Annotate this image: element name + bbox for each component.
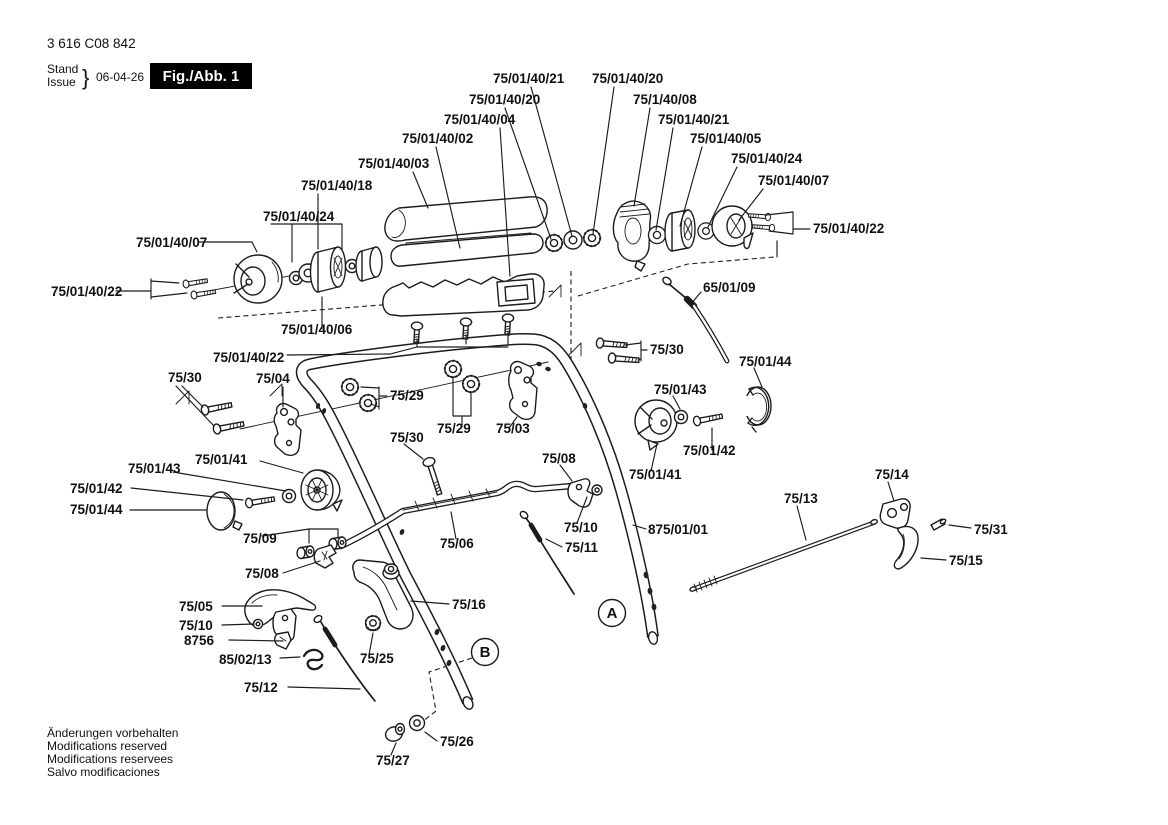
part-label-75-03: 75/03 (496, 421, 530, 436)
figure-label: Fig./Abb. 1 (163, 68, 240, 85)
bolt (608, 353, 639, 365)
flange-nut (463, 376, 479, 392)
washer (648, 226, 665, 243)
part-label-75-31: 75/31 (974, 522, 1008, 537)
part-label-75-01-44-b: 75/01/44 (739, 354, 792, 369)
clamp-piece (635, 400, 677, 450)
bearing-drum-left (311, 247, 346, 292)
grip-shell-bottom (383, 274, 544, 316)
ring-75-10 (253, 619, 262, 628)
bracket-75-04 (274, 404, 301, 456)
grip-screw (182, 276, 207, 288)
serrated-nut (584, 230, 600, 246)
footer-line-es: Salvo modificaciones (47, 765, 160, 779)
callout-a-letter: A (607, 605, 618, 622)
part-label-75-01-40-04: 75/01/40/04 (444, 112, 516, 127)
part-label-75-01-40-21-a: 75/01/40/21 (493, 71, 565, 86)
serrated-nut (546, 235, 562, 251)
part-label-75-30-b: 75/30 (650, 342, 684, 357)
part-label-75-1-40-08: 75/1/40/08 (633, 92, 697, 107)
bracket-75-03 (509, 362, 537, 420)
bolt (245, 494, 275, 508)
part-label-75-01-40-07-b: 75/01/40/07 (758, 173, 829, 188)
part-label-75-11: 75/11 (565, 540, 599, 555)
part-label-75-08-a: 75/08 (245, 566, 279, 581)
washer (564, 231, 582, 249)
footer-line-de: Änderungen vorbehalten (47, 726, 178, 740)
issue-word: Issue (47, 75, 76, 89)
part-label-75-01-41-a: 75/01/41 (195, 452, 248, 467)
washer-75-26 (410, 716, 425, 731)
part-label-75-01-40-03: 75/01/40/03 (358, 156, 430, 171)
part-label-75-10-a: 75/10 (179, 618, 213, 633)
clip-ring (741, 387, 771, 432)
part-label-75-01-40-22-c: 75/01/40/22 (813, 221, 884, 236)
bolt (200, 399, 232, 415)
parts-diagram: A B 75/01/40/21 75/01/40/20 75/01/40/20 … (0, 0, 1168, 825)
nut-75-25 (366, 616, 381, 631)
part-label-8756: 8756 (184, 633, 215, 648)
clamp-lever (613, 201, 650, 271)
washer (283, 490, 296, 503)
part-label-75-01-40-22-a: 75/01/40/22 (51, 284, 122, 299)
callout-b: B (472, 639, 499, 666)
part-label-75-26: 75/26 (440, 734, 474, 749)
part-label-75-04: 75/04 (256, 371, 290, 386)
bolt (693, 411, 723, 426)
part-label-75-05: 75/05 (179, 599, 213, 614)
part-label-75-01-40-22-b: 75/01/40/22 (213, 350, 284, 365)
lower-left-parts (245, 560, 425, 743)
bracket-75-14 (880, 499, 910, 528)
part-label-75-08-b: 75/08 (542, 451, 576, 466)
part-label-75-15: 75/15 (949, 553, 983, 568)
clamp-half-left (234, 255, 282, 303)
stand-word: Stand (47, 62, 78, 76)
part-label-75-01-40-07-a: 75/01/40/07 (136, 235, 207, 250)
cap-75-27 (384, 724, 405, 743)
part-label-75-10-b: 75/10 (564, 520, 598, 535)
washer (675, 411, 688, 424)
part-label-75-01-41-b: 75/01/41 (629, 467, 682, 482)
callout-a: A (599, 600, 626, 627)
part-label-75-01-40-24-a: 75/01/40/24 (263, 209, 335, 224)
part-label-75-01-40-06: 75/01/40/06 (281, 322, 353, 337)
part-label-75-09: 75/09 (243, 531, 277, 546)
issue-date: 06-04-26 (96, 70, 144, 84)
clamp-half-right (712, 206, 753, 248)
title-block: 3 616 C08 842 Stand Issue } 06-04-26 Fig… (47, 36, 252, 90)
grip-screw (752, 223, 774, 232)
adjuster-knob (301, 470, 342, 511)
part-label-75-06: 75/06 (440, 536, 474, 551)
brace-glyph: } (82, 65, 89, 90)
part-label-75-14: 75/14 (875, 467, 909, 482)
part-label-75-01-42-a: 75/01/42 (70, 481, 123, 496)
bolt (212, 418, 244, 434)
part-label-75-16: 75/16 (452, 597, 486, 612)
flange-nut (360, 395, 376, 411)
part-label-75-01-43-b: 75/01/43 (654, 382, 707, 397)
trigger-assembly (880, 499, 946, 569)
part-label-75-30-a: 75/30 (168, 370, 202, 385)
part-label-75-01-40-20-a: 75/01/40/20 (592, 71, 663, 86)
part-label-75-01-40-24-b: 75/01/40/24 (731, 151, 803, 166)
part-label-75-01-40-18: 75/01/40/18 (301, 178, 373, 193)
bearing-drum-right (665, 210, 695, 251)
part-label-75-01-40-20-b: 75/01/40/20 (469, 92, 540, 107)
part-label-75-01-40-05: 75/01/40/05 (690, 131, 762, 146)
rod-spacer (297, 546, 314, 559)
part-label-75-29-b: 75/29 (437, 421, 471, 436)
part-label-75-01-40-21-b: 75/01/40/21 (658, 112, 730, 127)
flange-nut (445, 361, 461, 377)
flange-nut (342, 379, 358, 395)
part-label-75-01-43-a: 75/01/43 (128, 461, 181, 476)
mount-brackets (200, 361, 537, 496)
footer-line-en: Modifications reserved (47, 739, 167, 753)
construction-lines (176, 241, 777, 722)
linkage-rod (689, 519, 878, 592)
footer-line-fr: Modifications reservees (47, 752, 173, 766)
footer-notes: Änderungen vorbehalten Modifications res… (47, 726, 178, 779)
part-number: 3 616 C08 842 (47, 36, 136, 51)
part-label-65-01-09: 65/01/09 (703, 280, 756, 295)
part-label-75-27: 75/27 (376, 753, 410, 768)
schematic-page: A B 75/01/40/21 75/01/40/20 75/01/40/20 … (0, 0, 1168, 825)
trigger-75-15 (894, 526, 918, 568)
part-label-75-25: 75/25 (360, 651, 394, 666)
rod-clip-block (314, 545, 336, 568)
grip-screw (748, 212, 770, 221)
clip-85-02-13 (304, 650, 322, 669)
callout-b-letter: B (480, 644, 491, 661)
part-label-75-29-a: 75/29 (390, 388, 424, 403)
part-label-75-01-42-b: 75/01/42 (683, 443, 736, 458)
grip-screw (190, 287, 215, 299)
pin-75-31 (931, 518, 946, 530)
part-label-875-01-01: 875/01/01 (648, 522, 709, 537)
height-adjuster-left (207, 470, 342, 530)
bolt-75-30-mid (422, 456, 445, 496)
cross-rod-assembly (297, 479, 602, 568)
part-label-75-01-44-a: 75/01/44 (70, 502, 123, 517)
part-label-85-02-13: 85/02/13 (219, 652, 272, 667)
part-label-75-12: 75/12 (244, 680, 278, 695)
part-label-75-13: 75/13 (784, 491, 818, 506)
bolt (596, 338, 627, 350)
part-label-75-01-40-02: 75/01/40/02 (402, 131, 473, 146)
part-label-75-30-c: 75/30 (390, 430, 424, 445)
bearing-drum-small (356, 247, 382, 281)
